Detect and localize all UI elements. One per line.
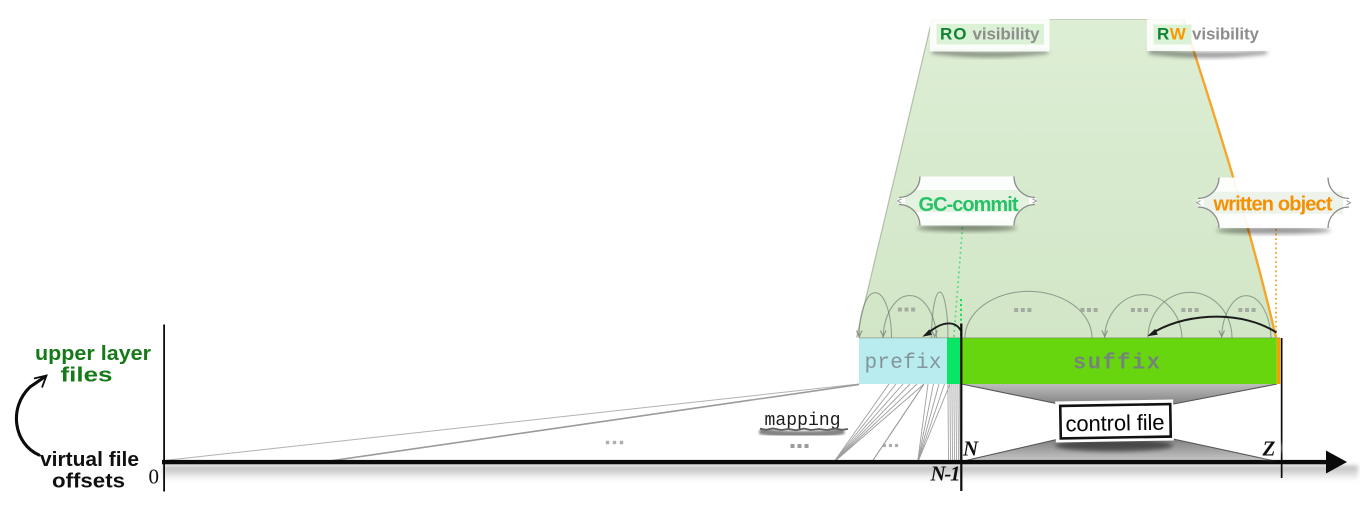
svg-text:0: 0 bbox=[149, 465, 160, 489]
svg-text:written object: written object bbox=[1213, 194, 1333, 216]
svg-text:upper layer: upper layer bbox=[35, 343, 151, 365]
svg-text:offsets: offsets bbox=[52, 471, 125, 493]
svg-text:visibility: visibility bbox=[1192, 25, 1260, 44]
svg-text:visibility: visibility bbox=[973, 25, 1041, 44]
svg-text:GC-commit: GC-commit bbox=[919, 194, 1019, 216]
svg-text:prefix: prefix bbox=[865, 352, 942, 375]
svg-text:Z: Z bbox=[1262, 437, 1276, 461]
svg-text:N-1: N-1 bbox=[930, 462, 961, 486]
svg-text:RO: RO bbox=[940, 25, 967, 44]
svg-text:W: W bbox=[1170, 25, 1187, 44]
svg-text:virtual file: virtual file bbox=[40, 449, 139, 471]
svg-text:suffix: suffix bbox=[1073, 351, 1160, 376]
svg-text:files: files bbox=[61, 365, 113, 387]
svg-text:R: R bbox=[1157, 25, 1169, 44]
svg-text:control file: control file bbox=[1065, 410, 1164, 437]
svg-text:N: N bbox=[962, 437, 979, 461]
